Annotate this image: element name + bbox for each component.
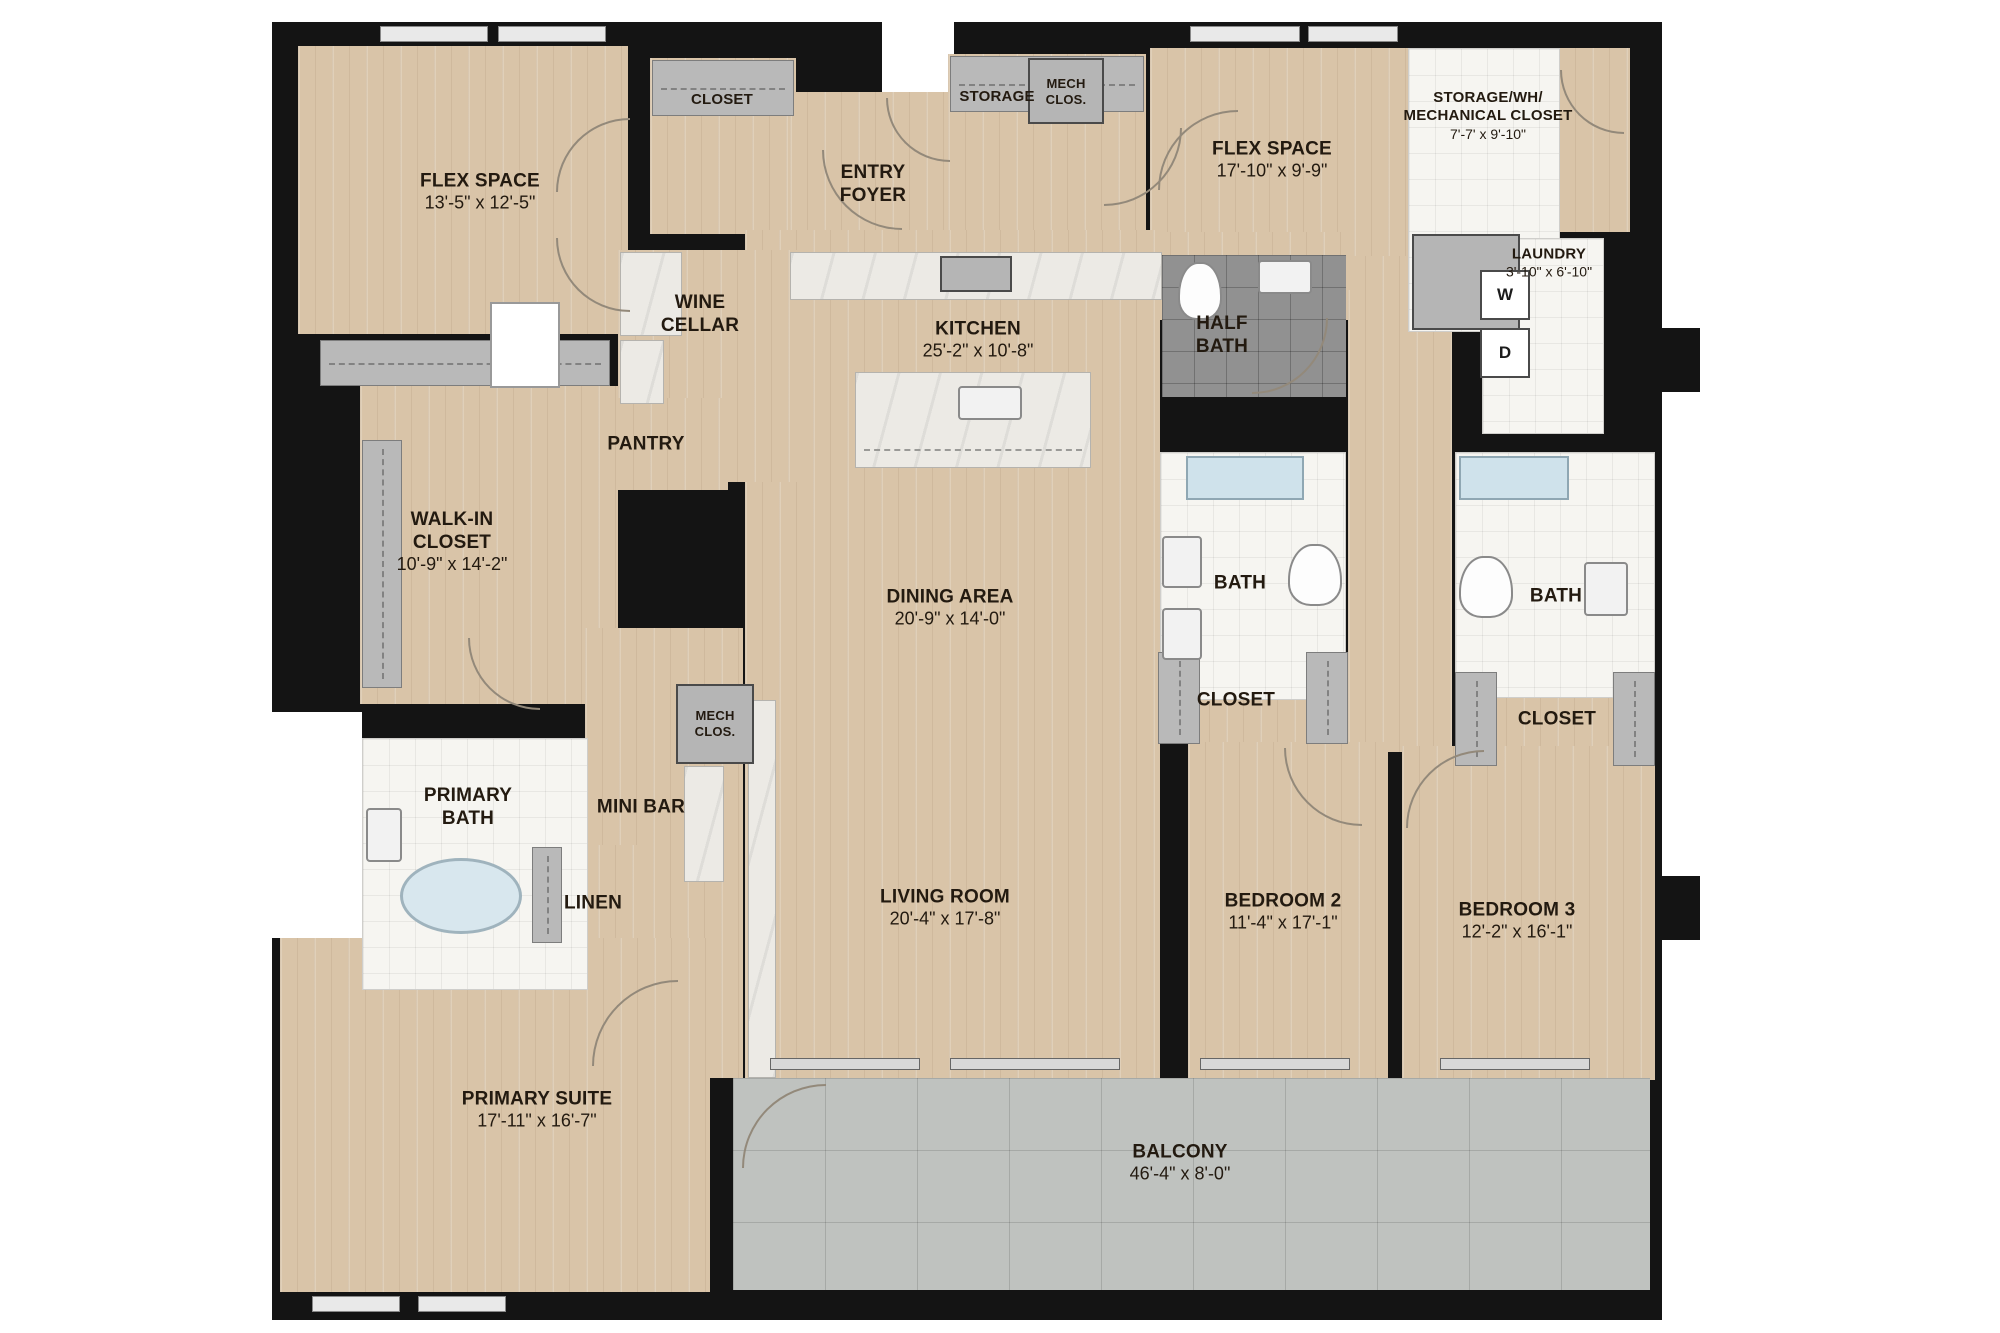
room-label-laundry: LAUNDRY 3'-10" x 6'-10" — [1479, 245, 1619, 280]
room-dims: 13'-5" x 12'-5" — [395, 193, 565, 215]
window-flex1-b — [498, 26, 606, 42]
room-label-entry-foyer: ENTRY FOYER — [823, 161, 923, 207]
room-label-flex-space-2: FLEX SPACE 17'-10" x 9'-9" — [1177, 137, 1367, 182]
dryer-label: D — [1499, 343, 1511, 363]
room-label-wine-cellar: WINE CELLAR — [645, 291, 755, 337]
left-exterior-notch — [272, 712, 362, 938]
window-flex2-b — [1308, 26, 1398, 42]
room-label-primary-suite: PRIMARY SUITE 17'-11" x 16'-7" — [422, 1087, 652, 1132]
room-name: WINE CELLAR — [645, 291, 755, 337]
room-dims: 17'-11" x 16'-7" — [422, 1111, 652, 1133]
room-label-closet-top: CLOSET — [662, 91, 782, 109]
primary-bath-sink — [366, 808, 402, 862]
room-name: PRIMARY SUITE — [422, 1087, 652, 1110]
room-label-mech-closet-center: MECH CLOS. — [683, 708, 747, 740]
room-dims: 20'-9" x 14'-0" — [835, 609, 1065, 631]
bath2-toilet — [1288, 544, 1342, 606]
window-primary-b — [418, 1296, 506, 1312]
shelf-rod-line — [1634, 681, 1636, 757]
shelf-rod-line — [329, 363, 601, 365]
room-label-pantry: PANTRY — [586, 432, 706, 455]
window-flex2-a — [1190, 26, 1300, 42]
room-name: LIVING ROOM — [835, 885, 1055, 908]
room-name: FLEX SPACE — [395, 169, 565, 192]
room-label-linen: LINEN — [548, 891, 638, 914]
room-label-bath-2: BATH — [1195, 571, 1285, 594]
room-name: FLEX SPACE — [1177, 137, 1367, 160]
closet-bed2-shelf-right — [1306, 652, 1348, 744]
balcony-slider-dining — [950, 1058, 1120, 1070]
primary-bath-tub — [400, 858, 522, 934]
room-name: MINI BAR — [586, 795, 696, 818]
room-label-mech-closet-top: MECH CLOS. — [1034, 76, 1098, 108]
washer-label: W — [1497, 285, 1513, 305]
room-name: CLOSET — [662, 91, 782, 109]
room-name: BATH — [1511, 584, 1601, 607]
room-dims: 12'-2" x 16'-1" — [1417, 922, 1617, 944]
room-name: MECH CLOS. — [1034, 76, 1098, 108]
room-dims: 25'-2" x 10'-8" — [868, 341, 1088, 363]
room-label-closet-bed3: CLOSET — [1497, 707, 1617, 730]
bath2-shower — [1186, 456, 1304, 500]
room-dims: 7'-7' x 9'-10" — [1391, 126, 1586, 143]
room-name: CLOSET — [1497, 707, 1617, 730]
shelf-rod-line — [661, 88, 785, 90]
shelf-rod-line — [1476, 681, 1478, 757]
room-label-flex-space-1: FLEX SPACE 13'-5" x 12'-5" — [395, 169, 565, 214]
room-name: MECH CLOS. — [683, 708, 747, 740]
room-dims: 3'-10" x 6'-10" — [1479, 264, 1619, 281]
room-name: BALCONY — [1070, 1140, 1290, 1163]
bath3-toilet — [1459, 556, 1513, 618]
room-name: KITCHEN — [868, 317, 1088, 340]
half-bath-sink — [1258, 260, 1312, 294]
room-name: STORAGE/WH/ MECHANICAL CLOSET — [1391, 89, 1586, 126]
room-name: HALF BATH — [1177, 312, 1267, 358]
stove-cooktop — [940, 256, 1012, 292]
island-sink — [958, 386, 1022, 420]
entry-exterior-notch — [882, 0, 954, 92]
room-label-living-room: LIVING ROOM 20'-4" x 17'-8" — [835, 885, 1055, 930]
room-label-half-bath: HALF BATH — [1177, 312, 1267, 358]
room-name: PANTRY — [586, 432, 706, 455]
room-dims: 46'-4" x 8'-0" — [1070, 1164, 1290, 1186]
balcony-slider-bed3 — [1440, 1058, 1590, 1070]
room-dims: 11'-4" x 17'-1" — [1183, 913, 1383, 935]
room-label-bedroom-2: BEDROOM 2 11'-4" x 17'-1" — [1183, 889, 1383, 934]
bath2-sink-2 — [1162, 608, 1202, 660]
room-name: BATH — [1195, 571, 1285, 594]
room-label-primary-bath: PRIMARY BATH — [403, 784, 533, 830]
room-label-bath-3: BATH — [1511, 584, 1601, 607]
room-name: WALK-IN CLOSET — [382, 508, 522, 554]
room-label-walk-in-closet: WALK-IN CLOSET 10'-9" x 14'-2" — [382, 508, 522, 576]
room-name: ENTRY FOYER — [823, 161, 923, 207]
island-overhang-line — [864, 449, 1082, 451]
walk-in-dresser — [490, 302, 560, 388]
room-name: LINEN — [548, 891, 638, 914]
balcony-slider-bed2 — [1200, 1058, 1350, 1070]
room-dims: 20'-4" x 17'-8" — [835, 909, 1055, 931]
floor-plan-canvas: W D FLEX SPACE 13'-5" x 12'-5" CLOSET EN… — [0, 0, 2000, 1333]
balcony-slider-living — [770, 1058, 920, 1070]
room-label-dining-area: DINING AREA 20'-9" x 14'-0" — [835, 585, 1065, 630]
closet-bed3-shelf-right — [1613, 672, 1655, 766]
room-name: BEDROOM 3 — [1417, 898, 1617, 921]
shelf-rod-line — [1327, 661, 1329, 735]
mini-bar-counter — [684, 766, 724, 882]
room-name: CLOSET — [1176, 688, 1296, 711]
room-label-closet-bed2: CLOSET — [1176, 688, 1296, 711]
room-label-kitchen: KITCHEN 25'-2" x 10'-8" — [868, 317, 1088, 362]
room-name: DINING AREA — [835, 585, 1065, 608]
dryer-box: D — [1480, 328, 1530, 378]
window-flex1-a — [380, 26, 488, 42]
room-name: BEDROOM 2 — [1183, 889, 1383, 912]
room-dims: 10'-9" x 14'-2" — [382, 554, 522, 576]
room-label-storage-wh: STORAGE/WH/ MECHANICAL CLOSET 7'-7' x 9'… — [1391, 89, 1586, 143]
wall-right-tab-upper — [1662, 328, 1700, 392]
room-label-balcony: BALCONY 46'-4" x 8'-0" — [1070, 1140, 1290, 1185]
room-name: PRIMARY BATH — [403, 784, 533, 830]
room-dims: 17'-10" x 9'-9" — [1177, 161, 1367, 183]
wall-right-tab-lower — [1662, 876, 1700, 940]
room-name: LAUNDRY — [1479, 245, 1619, 263]
room-label-mini-bar: MINI BAR — [586, 795, 696, 818]
wine-rack-2 — [620, 340, 664, 404]
bath3-shower — [1459, 456, 1569, 500]
walk-in-shelf-row — [320, 340, 610, 386]
window-primary-a — [312, 1296, 400, 1312]
room-label-bedroom-3: BEDROOM 3 12'-2" x 16'-1" — [1417, 898, 1617, 943]
